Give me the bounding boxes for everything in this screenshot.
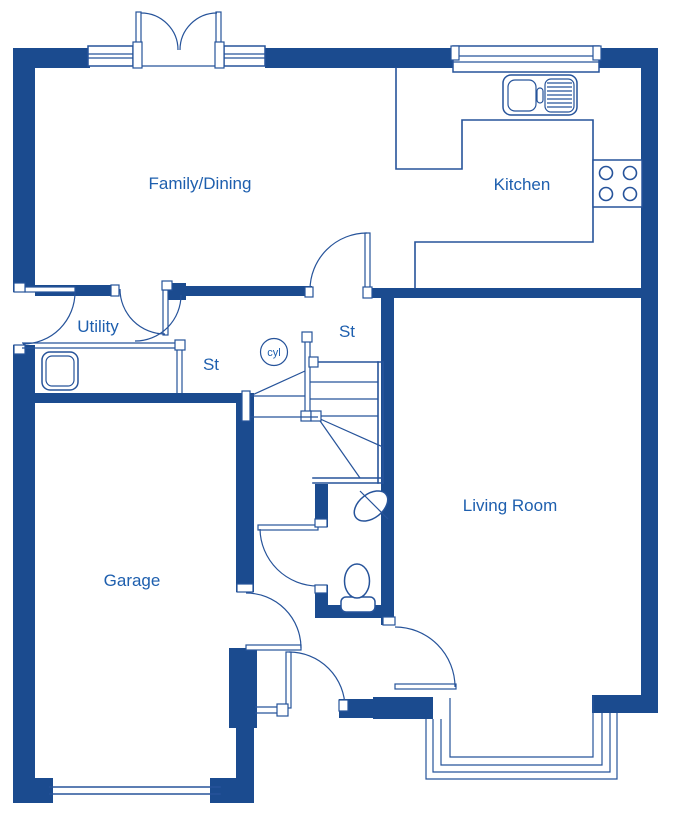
stairs xyxy=(242,332,383,483)
interior-walls xyxy=(35,283,658,803)
door-hall-to-living-room xyxy=(383,617,456,689)
room-label-living-room: Living Room xyxy=(463,496,558,515)
window-family-right xyxy=(224,46,265,66)
door-hall-to-wc xyxy=(258,519,327,593)
sink-drainer-lines xyxy=(547,83,572,107)
room-label-utility: Utility xyxy=(77,317,119,336)
hob-icon xyxy=(593,160,642,207)
door-hall-to-garage xyxy=(237,584,301,650)
door-family-to-utility xyxy=(111,281,172,335)
bay-window xyxy=(426,696,617,779)
patio-french-doors xyxy=(133,12,224,68)
floor-plan: Family/Dining Kitchen Utility St St cyl … xyxy=(0,0,679,817)
front-entrance-door xyxy=(286,652,348,711)
room-label-garage: Garage xyxy=(104,571,161,590)
window-kitchen xyxy=(451,46,601,72)
sink-icon xyxy=(503,75,577,115)
washing-machine-icon xyxy=(42,352,78,390)
room-label-store-stairs: St xyxy=(339,322,355,341)
garage-door xyxy=(50,787,220,794)
stairs-handrail xyxy=(301,332,321,421)
cylinder-symbol: cyl xyxy=(261,339,288,366)
toilet-icon xyxy=(341,564,375,612)
floor-plan-svg: Family/Dining Kitchen Utility St St cyl … xyxy=(0,0,679,817)
porch-side-panel xyxy=(255,704,288,716)
room-label-store-hall: St xyxy=(203,355,219,374)
cylinder-label: cyl xyxy=(267,347,280,359)
window-family-left xyxy=(88,46,133,66)
room-label-kitchen: Kitchen xyxy=(494,175,551,194)
room-label-family-dining: Family/Dining xyxy=(149,174,252,193)
door-family-to-hall xyxy=(305,233,372,298)
